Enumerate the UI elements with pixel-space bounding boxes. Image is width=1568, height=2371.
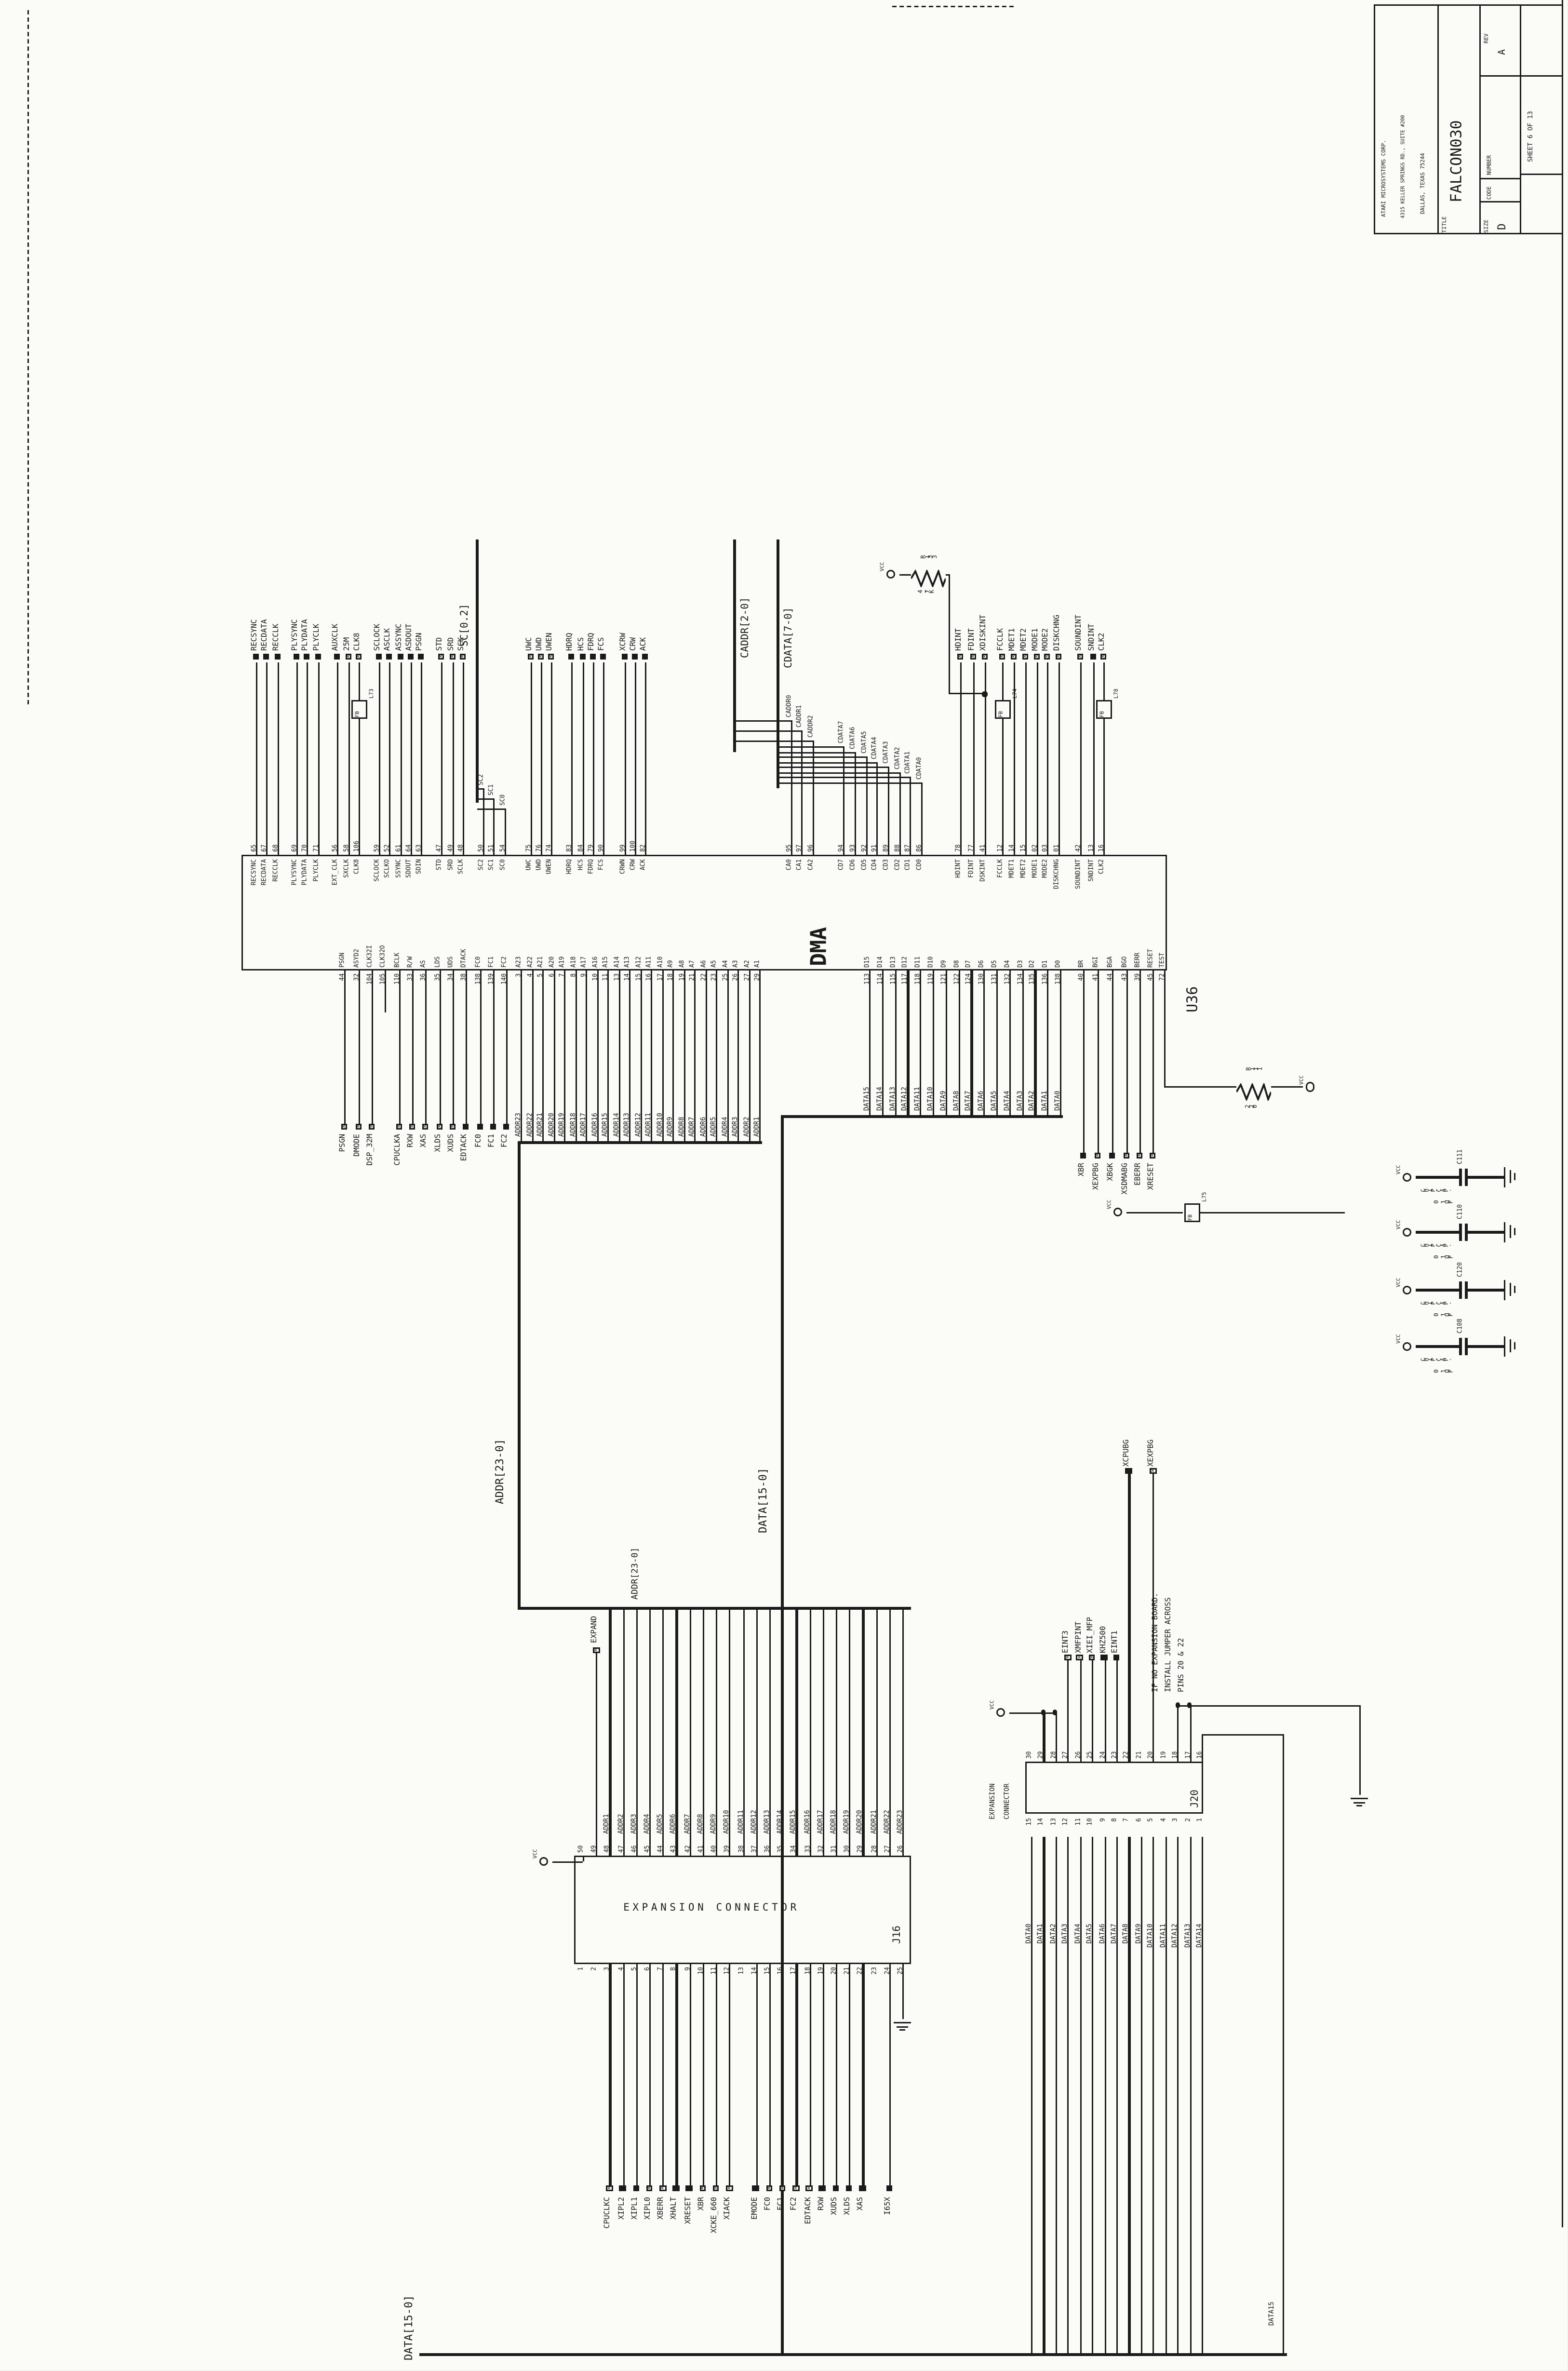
gnd-symbol [1504,1167,1506,1187]
offpage-flag [1022,653,1029,660]
net-label: ADDR22 [885,1810,892,1834]
pin-number: 69 [293,844,300,852]
offpage-flag [672,2185,679,2192]
wire [1416,1231,1459,1233]
chip-pin-label: A12 [637,956,643,968]
offpage-flag [490,1123,496,1130]
net-label: ADDR22 [528,1113,535,1137]
bus-tap-label: CDATA4 [873,736,880,759]
offpage-flag [1080,1152,1086,1159]
pin-wire [727,970,728,1141]
resistor-value: 4.7K [918,588,933,595]
pin-wire [1177,1705,1179,1762]
bus-tap-label: CDATA0 [918,756,925,779]
pin-number: 25 [724,973,730,981]
signal-label: XDISKINT [981,615,989,651]
pin-number: 23 [712,973,719,981]
connector-pin-number: 8 [1113,1818,1120,1822]
net-label: ADDR3 [734,1117,741,1137]
net-label: DATA13 [891,1087,898,1111]
pin-wire [1164,970,1166,1088]
signal-label: HDINT [956,628,964,651]
pin-wire [694,970,696,1141]
signal-label: MODE2 [1043,628,1051,651]
chip-pin-label: SDOUT [407,859,414,878]
offpage-flag [819,2185,826,2192]
chip-pin-label: D8 [955,960,962,968]
pin-number: 134 [1019,973,1025,984]
net-label: ADDR19 [845,1810,852,1834]
net-label: ADDR3 [632,1814,639,1834]
capacitor-refdes: C110 [1459,1204,1465,1219]
pin-number: 44 [1109,973,1115,981]
offpage-flag [462,1123,469,1130]
pin-wire [689,1964,691,2185]
net-label: ADDR4 [723,1117,730,1137]
offpage-flag [1064,1654,1071,1661]
wire [1468,1289,1504,1291]
chip-pin-label: A14 [615,956,622,968]
pin-number: 132 [1006,973,1013,984]
company-city: DALLAS, TEXAS 75244 [1421,153,1427,214]
pin-number: 124 [967,973,974,984]
connector-pin-number: 13 [739,1967,746,1975]
offpage-flag [590,653,596,660]
chip-pin-label: CRW [631,859,638,870]
pin-number: 74 [548,844,554,852]
pin-number: 122 [955,973,962,984]
chip-pin-label: UWEN [548,859,554,874]
net-label: ADDR17 [582,1113,589,1137]
connector-pin-number: 15 [1028,1818,1034,1826]
net-label: ADDR12 [636,1113,643,1137]
offpage-flag [568,653,575,660]
chip-pin-label: A19 [561,956,567,968]
bus-tap-label: CDATA5 [863,731,870,754]
pin-number: 02 [1033,844,1040,852]
connector-pin-number: 2 [1186,1818,1193,1822]
offpage-flag [752,2185,759,2192]
pin-wire [385,970,386,1012]
pin-number: 52 [386,844,392,852]
pin-wire [441,662,442,855]
pin-wire [531,662,532,855]
connector-pin-number: 2 [593,1967,600,1971]
resistor [1236,1079,1271,1106]
pin-wire [778,772,899,773]
chip-pin-label: A16 [593,956,600,968]
net-label: DATA14 [878,1087,885,1111]
net-label: ADDR13 [766,1810,773,1834]
vcc-label: VCC [1300,1075,1305,1084]
pin-number: 70 [303,844,310,852]
chip-pin-label: A10 [658,956,665,968]
wire [1202,1734,1283,1736]
pin-wire [1177,1837,1179,2353]
chip-pin-label: UDS [449,956,456,968]
chip-pin-label: FC1 [490,956,496,968]
signal-label: RECSYNC [252,619,260,651]
signal-label: PLYCLK [314,624,322,651]
chip-pin-label: D4 [1006,960,1013,968]
pin-number: 16 [1100,844,1107,852]
net-label: ADDR15 [604,1113,611,1137]
junction-dot [1175,1703,1180,1708]
bus-tap-label: SC0 [501,795,508,806]
capacitor [1459,1281,1461,1299]
company-name: ATARI MICROSYSTEMS CORP. [1382,140,1388,217]
signal-label: FC0 [476,1134,484,1147]
gnd-symbol [1354,1802,1365,1804]
offpage-flag [477,1123,483,1130]
pin-number: 130 [980,973,987,984]
pin-wire [493,970,495,1124]
offpage-flag [459,653,466,660]
pin-wire [506,970,508,1124]
capacitor [1465,1224,1467,1241]
pin-number: 58 [345,844,352,852]
offpage-flag [686,2185,693,2192]
offpage-flag [832,2185,839,2192]
pin-number: 56 [334,844,340,852]
pin-wire [1056,1837,1057,2353]
connector-pin-number: 13 [1052,1818,1059,1826]
pin-number: 100 [631,841,638,852]
connector-pin-number: 6 [1138,1818,1144,1822]
pin-wire [1153,1837,1154,2353]
pin-wire [278,662,279,855]
offpage-flag [1089,1654,1096,1661]
offpage-flag [593,1647,600,1654]
net-label: DATA7 [1113,1924,1120,1944]
net-label: ADDR9 [712,1814,719,1834]
chip-pin-label: A22 [528,956,535,968]
pin-number: 03 [1044,844,1050,852]
pin-wire [379,662,380,855]
pin-wire [583,662,584,855]
connector-pin-number: 23 [872,1967,879,1975]
pin-wire [453,970,454,1124]
capacitor-refdes: C111 [1459,1149,1465,1164]
signal-label: XCPUBG [1125,1440,1132,1467]
chip-pin-label: CLK2 [1100,859,1107,874]
vcc-symbol [1402,1172,1411,1182]
chip-pin-label: D15 [866,956,872,968]
chip-pin-label: D11 [917,956,924,968]
offpage-flag [779,2185,786,2192]
pin-wire [493,798,495,855]
capacitor [1465,1281,1467,1299]
gnd-symbol [1356,1805,1362,1807]
pin-wire [782,1964,784,2185]
signal-label: ASDOUT [407,624,415,651]
pin-number: 113 [866,973,872,984]
net-label: DATA11 [916,1087,923,1111]
chip-pin-label: A11 [647,956,654,968]
pin-wire [778,752,855,753]
wire [1468,1231,1504,1233]
pin-number: 6 [550,973,557,977]
chip-pin-label: SCLK [459,859,466,874]
connector-pin-number: 4 [1162,1818,1168,1822]
offpage-flag [368,1123,375,1130]
pin-wire [389,662,390,855]
pin-wire [541,662,542,855]
connector-pin-number: 1 [579,1967,586,1971]
signal-label: FC2 [792,2197,800,2210]
chip-pin-label: SOUNDINT [1077,859,1084,889]
chip-pin-label: PSGN [341,953,348,968]
chip-pin-label: CA1 [798,859,804,870]
offpage-flag [1090,653,1097,660]
pin-wire [1002,662,1004,855]
pin-wire [822,1964,824,2185]
gnd-symbol [1514,1228,1516,1236]
pin-number: 77 [970,844,977,852]
net-label: ADDR1 [606,1814,613,1834]
bus-line [419,2353,1287,2357]
wire [1283,1734,1285,2356]
net-label: ADDR16 [805,1810,812,1834]
chip-pin-label: D1 [1044,960,1051,968]
net-label: ADDR10 [658,1113,665,1137]
pin-wire [1128,1474,1130,1762]
chip-pin-label: AS [422,960,429,968]
pin-wire [645,662,646,855]
bus-line [781,1115,1063,1118]
vcc-symbol [1113,1207,1122,1216]
pin-wire [359,662,360,855]
chip-pin-label: DISKCHNG [1055,859,1062,889]
pin-number: 11 [604,973,611,981]
chip-pin-label: SC2 [480,859,486,870]
connector-pin-number: 12 [1064,1818,1071,1826]
signal-label: RXW [408,1134,416,1147]
pin-number: 13 [615,973,622,981]
net-label: DATA9 [942,1091,949,1111]
signal-label: STD [437,637,445,651]
pin-number: 45 [1149,973,1156,981]
chip-pin-label: CA0 [788,859,794,870]
connector-pin-number: 5 [1150,1818,1156,1822]
pin-number: 40 [1080,973,1086,981]
pin-wire [1202,1837,1203,2353]
signal-label: XIPL1 [632,2197,640,2220]
pin-number: 21 [691,973,697,981]
signal-label: PLYSYNC [293,619,300,651]
offpage-flag [315,653,322,660]
pin-wire [769,1964,771,2185]
chip-pin-label: HDRQ [568,859,575,874]
offpage-flag [1077,653,1084,660]
pin-wire [889,1964,890,2185]
chip-function-label: DMA [808,927,831,966]
offpage-flag [726,2185,733,2192]
signal-label: UWC [527,637,535,651]
chip-pin-label: A18 [572,956,578,968]
pin-wire [705,970,707,1141]
capacitor-value: 0.1UF [1434,1311,1452,1319]
wire [1009,1712,1057,1714]
bus-label: CDATA[7-0] [784,607,795,668]
chip-pin-label: SCLKO [386,859,392,878]
pin-wire [623,1964,624,2185]
vcc-label: VCC [1396,1278,1402,1288]
drawing-title: FALCON030 [1449,120,1465,202]
signal-label: XBR [1079,1163,1087,1176]
net-label: ADDR6 [701,1117,708,1137]
offpage-flag [1076,1654,1083,1661]
offpage-flag [806,2185,813,2192]
pin-wire [749,970,750,1141]
capacitor [1459,1338,1461,1355]
pin-wire [1092,1660,1093,1762]
pin-number: 118 [917,973,924,984]
pin-number: 26 [734,973,741,981]
vcc-symbol [996,1708,1005,1717]
pin-wire [836,1964,837,2185]
chip-pin-label: CD0 [918,859,925,870]
chip-pin-label: CD1 [906,859,913,870]
net-label: ADDR5 [712,1117,719,1137]
junction-dot [1041,1710,1045,1715]
net-label: DATA3 [1064,1924,1071,1944]
offpage-flag [1136,1152,1143,1159]
chip-pin-label: D5 [993,960,1000,968]
pin-number: 71 [315,844,322,852]
pin-wire [1104,1837,1106,2353]
chip-pin-label: PLYDATA [303,859,310,885]
pin-number: 115 [891,973,898,984]
bus-label: ADDR[23-0] [495,1439,506,1504]
pin-wire [921,782,923,855]
pin-wire [412,970,414,1124]
chip-pin-label: CD6 [851,859,858,870]
signal-label: DMODE [355,1134,362,1157]
chip-pin-label: TEST [1161,953,1167,968]
signal-label: UWD [537,637,545,651]
offpage-flag [766,2185,773,2192]
net-label: ADDR23 [899,1810,906,1834]
offpage-flag [646,2185,653,2192]
gnd-symbol [1509,1340,1511,1353]
pin-wire [1043,1712,1045,1762]
capacitor-value: 0.1UF [1434,1199,1452,1206]
pin-number: 83 [568,844,575,852]
vcc-symbol [1402,1342,1411,1351]
chip-pin-label: A1 [756,960,763,968]
pin-wire [778,756,866,758]
offpage-flag [712,2185,719,2192]
net-label: ADDR21 [539,1113,546,1137]
size-label: SIZE [1484,220,1489,233]
bus-line [476,539,479,803]
capacitor [1465,1169,1467,1186]
offpage-flag [436,1123,443,1130]
resistor-refdes: R133 [921,553,936,561]
gnd-symbol [1504,1280,1506,1300]
offpage-flag [274,653,281,660]
pin-number: 84 [579,844,586,852]
chip-pin-label: D9 [942,960,949,968]
chip-pin-label: A15 [604,956,611,968]
wire [1468,1346,1504,1347]
net-label: ADDR13 [626,1113,632,1137]
chip-pin-label: CLK32I [368,945,375,968]
pin-number: 15 [1022,844,1029,852]
signal-label: XHALT [672,2197,680,2220]
pin-number: 10 [593,973,600,981]
offpage-flag [1149,1152,1156,1159]
pin-wire [1116,1660,1118,1762]
pin-number: 76 [537,844,544,852]
chip-pin-label: SNDINT [1090,859,1097,882]
pin-wire [635,662,636,855]
vcc-symbol [1402,1227,1411,1237]
pin-number: 136 [1044,973,1051,984]
pin-number: 61 [397,844,404,852]
chip-pin-label: A7 [691,960,697,968]
signal-label: XIEI_MFP [1088,1617,1096,1653]
vcc-label: VCC [990,1700,995,1710]
wire [1416,1346,1459,1347]
pin-wire [876,762,878,855]
pin-wire [1056,1712,1057,1762]
pin-wire [1126,970,1128,1153]
pin-wire [266,662,268,855]
bus-label: CADDR[2-0] [741,597,751,658]
net-label: ADDR6 [672,1814,679,1834]
connector-title: CONNECTOR [1006,1783,1013,1819]
pin-wire [649,1964,651,2185]
note-line: INSTALL JUMPER ACROSS [1166,1597,1174,1692]
pin-wire [737,970,739,1141]
offpage-flag [1094,1152,1101,1159]
net-label: DATA15 [866,1087,872,1111]
pin-wire [729,1964,731,2185]
pin-wire [593,662,594,855]
pin-number: 4 [528,973,535,977]
net-label: ADDR8 [680,1117,686,1137]
pin-number: 42 [1077,844,1084,852]
pin-wire [1068,1837,1069,2353]
offpage-flag [699,2185,706,2192]
chip-pin-label: A4 [724,960,730,968]
chip-pin-label: BGA [1109,956,1115,968]
resistor-refdes: R111 [1246,1065,1261,1073]
vcc-label: VCC [533,1849,538,1859]
offpage-flag [1101,1654,1108,1661]
signal-label: FC0 [765,2197,773,2210]
page-border-right [1562,0,1564,2227]
wire [899,574,911,576]
pin-wire [1116,1837,1118,2353]
vcc-symbol [886,569,895,579]
pin-number: 41 [981,844,988,852]
signal-label: FC2 [502,1134,510,1147]
net-label: ADDR20 [549,1113,556,1137]
gnd-symbol [1509,1283,1511,1296]
signal-label: ASSYNC [397,624,404,651]
wire [949,574,950,694]
chip-pin-label: STD [438,859,444,870]
net-label: DATA6 [980,1091,987,1111]
pin-wire [778,767,888,768]
pin-wire [1141,1837,1142,2353]
pin-wire [735,741,813,742]
pin-number: 106 [355,841,362,852]
chip-pin-label: UWD [537,859,544,870]
